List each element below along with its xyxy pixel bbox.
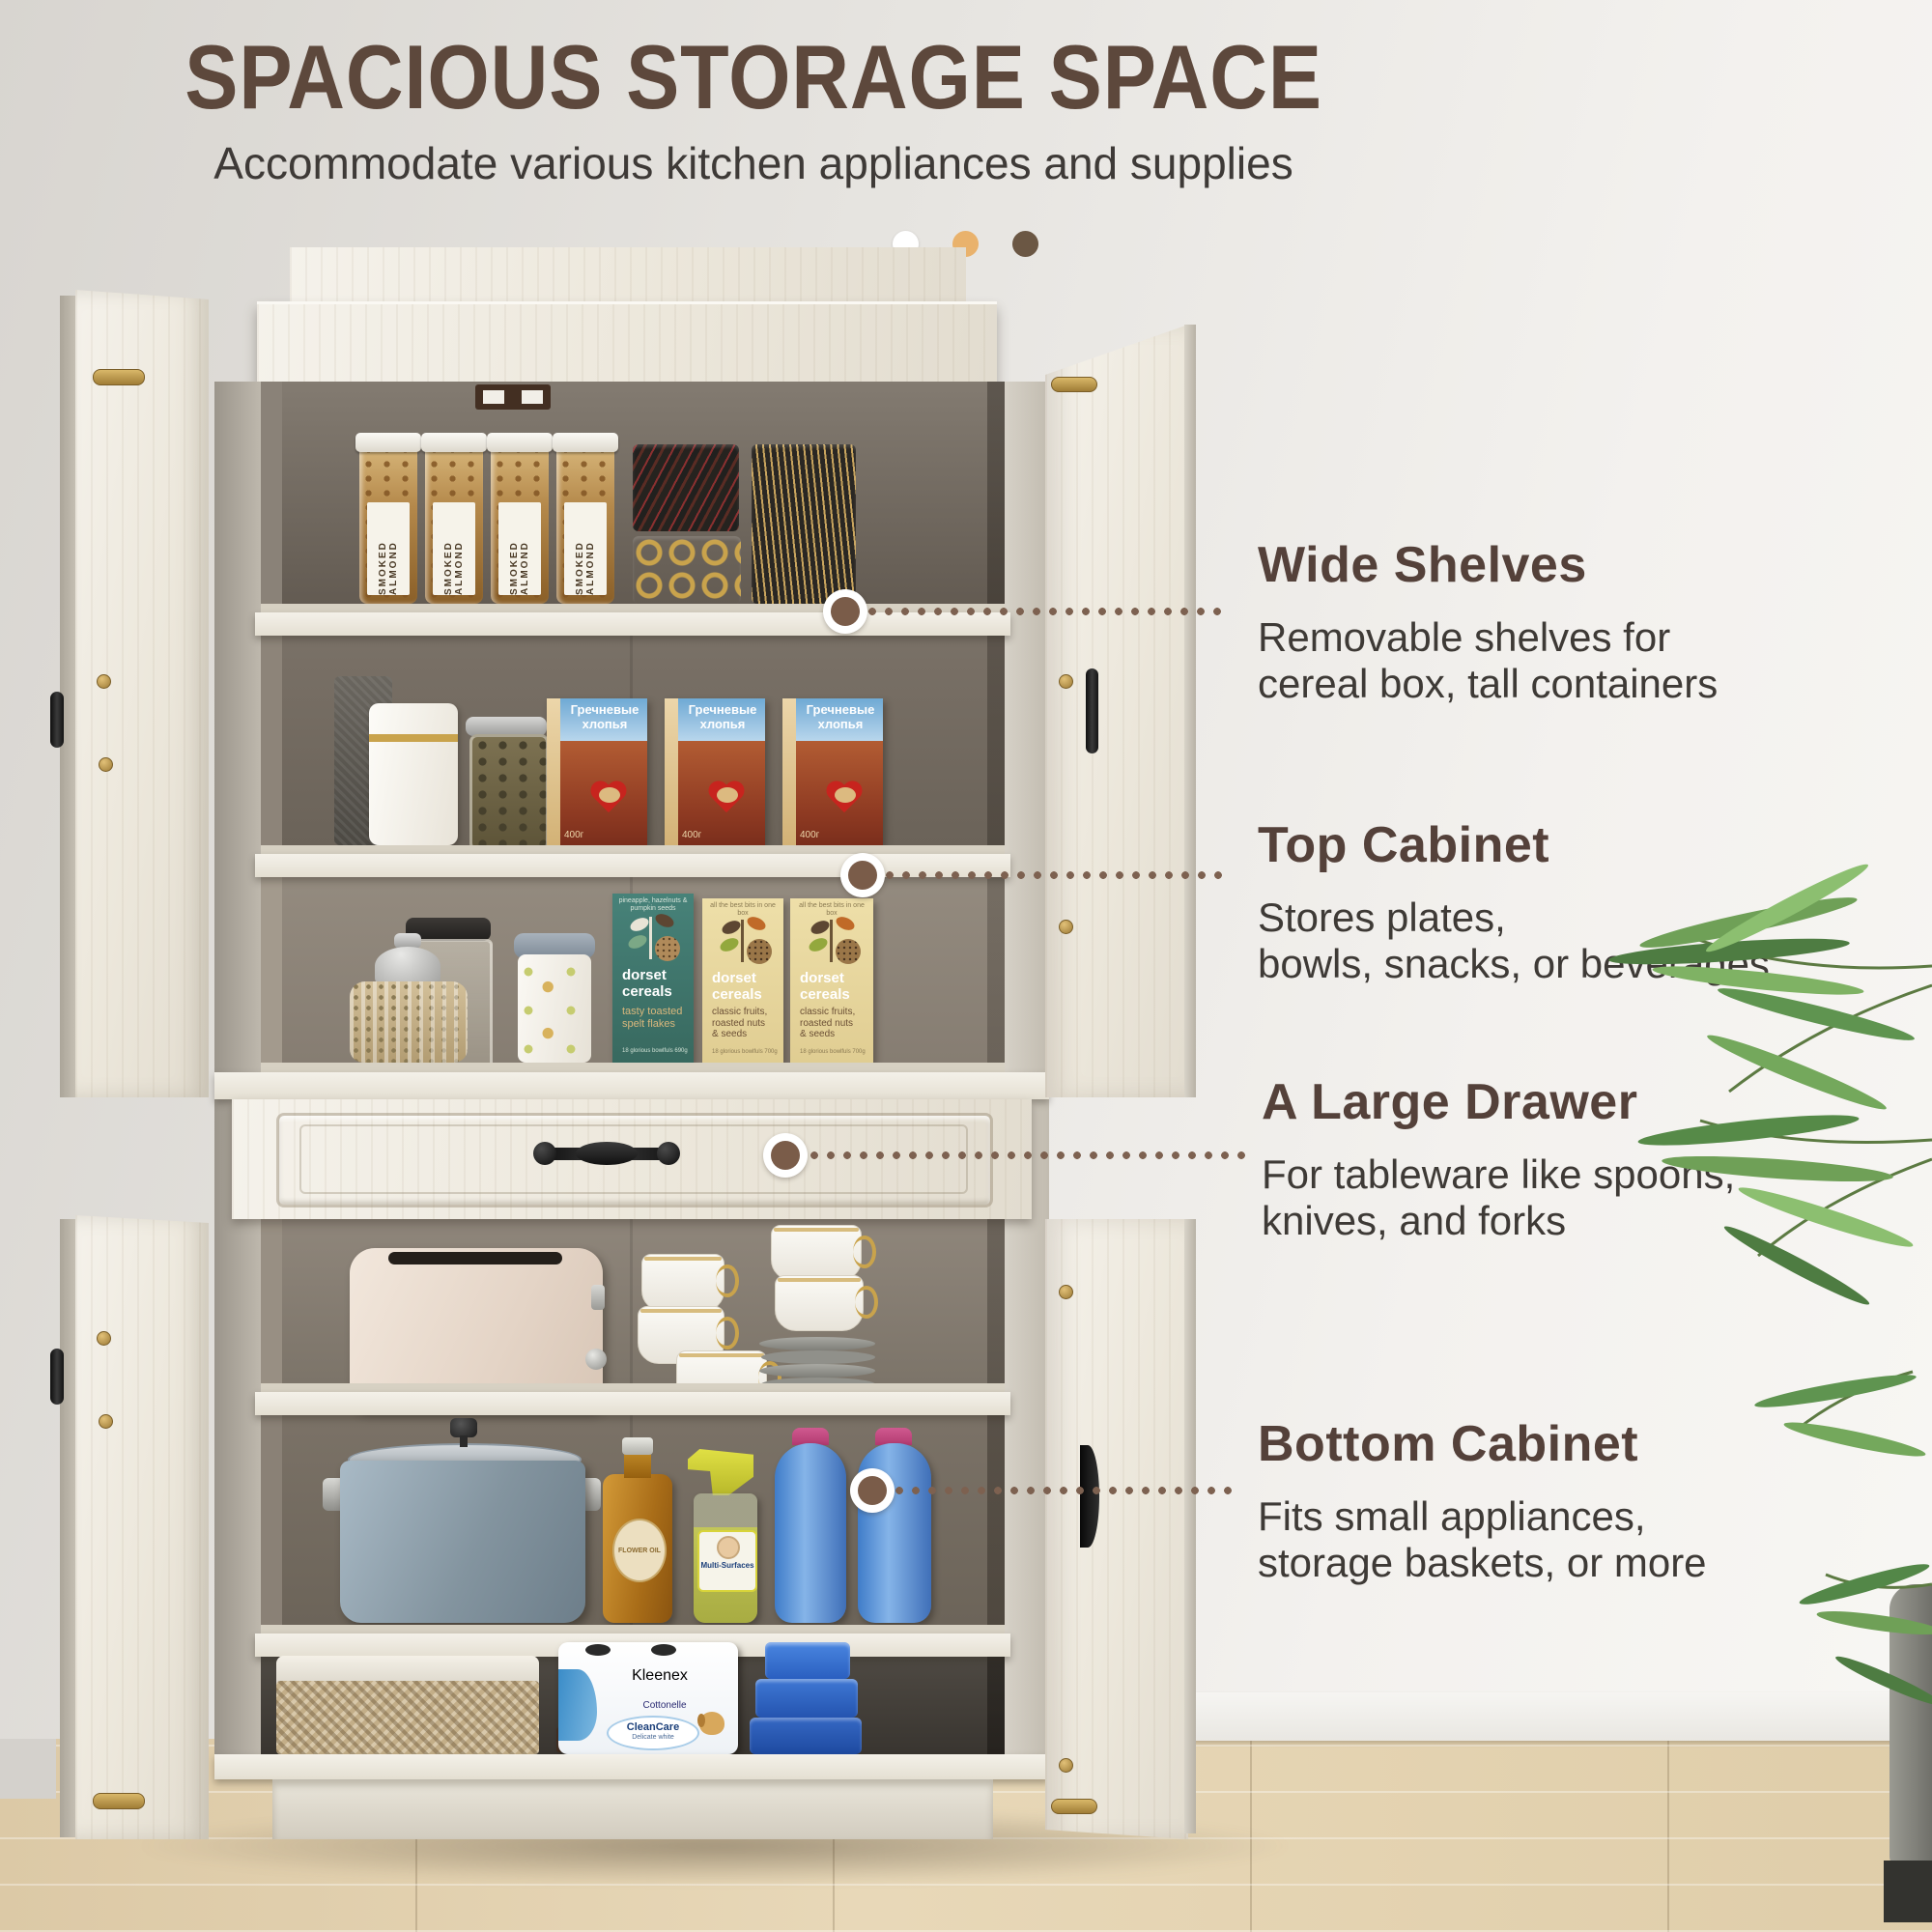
callout-line-top-cabinet <box>885 870 1225 880</box>
callout-heading: Wide Shelves <box>1258 537 1915 595</box>
cereal-box-ru: Гречневыехлопья 400г <box>782 698 883 845</box>
cereal-box-title: Гречневыехлопья <box>680 703 765 732</box>
oil-bottle-label: FLOWER OIL <box>612 1519 667 1582</box>
door-screw <box>1059 920 1073 934</box>
kleenex-sub: Cottonelle <box>616 1700 713 1711</box>
cereal-box-title: Гречневыехлопья <box>562 703 647 732</box>
glass-jar-snacks <box>469 734 549 851</box>
dorset-box-green: pineapple, hazelnuts & pumpkin seeds dor… <box>612 894 694 1063</box>
white-canister <box>369 703 458 845</box>
white-cylinder-canister <box>518 954 591 1063</box>
door-edge <box>1184 1219 1196 1833</box>
porridge-icon <box>835 787 856 803</box>
dorset-bottom-text: 18 glorious bowlfuls 690g <box>616 1048 696 1054</box>
product-infographic: SPACIOUS STORAGE SPACE Accommodate vario… <box>0 0 1932 1932</box>
toaster-slot <box>388 1252 562 1264</box>
dorset-bottom-text: 18 glorious bowlfuls 700g <box>706 1049 785 1055</box>
door-screw <box>1059 1285 1073 1299</box>
drawer-handle-post <box>533 1142 556 1165</box>
kleenex-brand: Kleenex <box>587 1667 732 1685</box>
cereal-box-weight: 400г <box>800 830 819 840</box>
dorset-brand: dorsetcereals <box>616 967 696 1001</box>
pager-dot-3 <box>1012 231 1038 257</box>
saucer-stack <box>759 1364 875 1378</box>
dorset-box-cream: all the best bits in one box dorsetcerea… <box>702 898 783 1063</box>
stacked-cup <box>775 1275 864 1331</box>
blue-bin-bottom <box>750 1718 862 1754</box>
door-edge <box>60 1219 77 1837</box>
cereal-box-ru: Гречневыехлопья 400г <box>547 698 647 845</box>
grain-circle-icon <box>836 939 861 964</box>
door-handle <box>1086 668 1098 753</box>
toaster-lever <box>591 1285 605 1310</box>
door-hinge <box>1051 1799 1097 1814</box>
leaf-motif-icon <box>807 935 829 953</box>
dorset-box-cream: all the best bits in one box dorsetcerea… <box>790 898 873 1063</box>
canister-gold-band <box>369 734 458 742</box>
counter-surface <box>261 1063 1005 1072</box>
glass-jar-lid <box>466 717 547 736</box>
door-edge <box>1184 325 1196 1097</box>
plant-leaves <box>1608 857 1932 1710</box>
cabinet-top-back <box>290 247 966 303</box>
cereal-box-side <box>547 698 560 845</box>
cereal-box-title: Гречневыехлопья <box>798 703 883 732</box>
door-top-right <box>1045 325 1188 1097</box>
dorset-brand: dorsetcereals <box>706 970 785 1004</box>
kleenex-pack: Kleenex Cottonelle CleanCare Delicate wh… <box>558 1642 738 1754</box>
callout-dot-large-drawer <box>763 1133 808 1178</box>
porridge-icon <box>717 787 738 803</box>
callout-dot-wide-shelves <box>823 589 867 634</box>
leaf-motif-icon <box>628 915 650 933</box>
shelf-surface <box>261 845 1005 854</box>
jar-lid <box>421 433 487 452</box>
blue-bin-mid <box>755 1679 858 1718</box>
wicker-basket <box>276 1681 539 1754</box>
dorset-variant: classic fruits,roasted nuts& seeds <box>794 1007 875 1040</box>
detergent-bottle <box>775 1443 846 1623</box>
leaf-motif-icon <box>718 935 740 953</box>
stacked-cup <box>771 1225 862 1281</box>
kleenex-roll-top <box>585 1644 611 1656</box>
saucer-stack <box>759 1337 875 1350</box>
stacked-cup <box>641 1254 724 1312</box>
pasta-container-noodles <box>633 444 739 531</box>
dorset-top-text: all the best bits in one box <box>706 902 780 918</box>
kleenex-roll-top <box>651 1644 676 1656</box>
saucer-stack <box>761 1350 875 1364</box>
door-screw <box>1059 1758 1073 1773</box>
callout-line-large-drawer <box>810 1151 1246 1160</box>
counter-board <box>214 1072 1049 1099</box>
pot-lid-knob <box>450 1418 477 1437</box>
page-title: SPACIOUS STORAGE SPACE <box>0 25 1507 129</box>
cereal-box-weight: 400г <box>682 830 701 840</box>
stock-pot <box>340 1461 585 1623</box>
kleenex-line1: CleanCare <box>607 1721 699 1733</box>
callout-line-wide-shelves <box>867 607 1225 616</box>
leaf-motif-icon <box>649 917 652 959</box>
grain-circle-icon <box>747 939 772 964</box>
leaf-motif-icon <box>809 918 831 936</box>
callout-dot-bottom-cabinet <box>850 1468 895 1513</box>
jar-lid <box>487 433 553 452</box>
oil-bottle-neck <box>624 1451 651 1478</box>
cereal-box-side <box>782 698 796 845</box>
door-handle <box>50 1349 64 1405</box>
cabinet-crown <box>257 301 997 385</box>
spray-label: Multi-Surfaces <box>697 1530 757 1592</box>
dorset-top-text: pineapple, hazelnuts & pumpkin seeds <box>616 897 690 913</box>
cabinet-bottom-board <box>214 1754 1049 1779</box>
almond-jar-label: SMOKED ALMOND <box>433 502 475 595</box>
pot-knob-stem <box>460 1435 468 1447</box>
ribbed-glass-jar <box>350 981 468 1063</box>
door-screw <box>97 1331 111 1346</box>
leaf-motif-icon <box>741 920 744 962</box>
ribbed-jar-lid <box>375 947 440 985</box>
dorset-variant: classic fruits,roasted nuts& seeds <box>706 1007 785 1040</box>
door-screw <box>97 674 111 689</box>
latch-pad-icon <box>483 390 504 404</box>
shelf-surface <box>261 1625 1005 1634</box>
almond-jar-label: SMOKED ALMOND <box>367 502 410 595</box>
palm-plant <box>1507 850 1932 1932</box>
toaster-dial <box>585 1349 607 1370</box>
cereal-box-side <box>665 698 678 845</box>
almond-jar-label: SMOKED ALMOND <box>498 502 541 595</box>
jar-lid <box>355 433 421 452</box>
porridge-icon <box>599 787 620 803</box>
spray-mascot-icon <box>717 1536 740 1559</box>
door-bottom-left <box>75 1215 209 1839</box>
drawer-handle-grip <box>576 1142 638 1165</box>
dorset-variant: tasty toastedspelt flakes <box>616 1006 696 1030</box>
shelf-board-3 <box>255 1392 1010 1415</box>
callout-line-bottom-cabinet <box>895 1486 1235 1495</box>
kleenex-line2: Delicate white <box>607 1734 699 1741</box>
leaf-motif-icon <box>830 920 833 962</box>
leaf-motif-icon <box>626 932 648 951</box>
door-hinge <box>93 369 145 385</box>
door-top-left <box>75 290 209 1097</box>
callout-body: Removable shelves forcereal box, tall co… <box>1258 614 1915 708</box>
almond-jar-label: SMOKED ALMOND <box>564 502 607 595</box>
callout-dot-top-cabinet <box>840 853 885 897</box>
drawer-handle-post <box>657 1142 680 1165</box>
page-subtitle: Accommodate various kitchen appliances a… <box>0 137 1507 189</box>
left-wall-corner <box>0 1739 56 1799</box>
door-screw <box>99 1414 113 1429</box>
door-hinge <box>1051 377 1097 392</box>
leaf-motif-icon <box>653 911 675 929</box>
spaghetti-container <box>752 444 856 604</box>
oil-bottle-cap <box>622 1437 653 1455</box>
shelf-surface <box>261 1383 1005 1392</box>
dorset-brand: dorsetcereals <box>794 970 875 1004</box>
dorset-top-text: all the best bits in one box <box>794 902 869 918</box>
door-screw <box>99 757 113 772</box>
cereal-box-ru: Гречневыехлопья 400г <box>665 698 765 845</box>
jar-lid <box>553 433 618 452</box>
latch-pad-icon <box>522 390 543 404</box>
spray-label-text: Multi-Surfaces <box>699 1561 755 1570</box>
cabinet-plinth <box>272 1779 993 1839</box>
cereal-box-weight: 400г <box>564 830 583 840</box>
door-handle <box>50 692 64 748</box>
dorset-bottom-text: 18 glorious bowlfuls 700g <box>794 1049 875 1055</box>
pasta-container-rings <box>633 536 741 604</box>
grain-circle-icon <box>655 936 680 961</box>
door-bottom-right <box>1045 1219 1188 1839</box>
door-screw <box>1059 674 1073 689</box>
leaf-motif-icon <box>720 918 742 936</box>
door-hinge <box>93 1793 145 1809</box>
callout-wide-shelves: Wide Shelves Removable shelves forcereal… <box>1258 537 1915 707</box>
blue-bin-top <box>765 1642 850 1679</box>
puppy-ear-icon <box>697 1714 705 1727</box>
